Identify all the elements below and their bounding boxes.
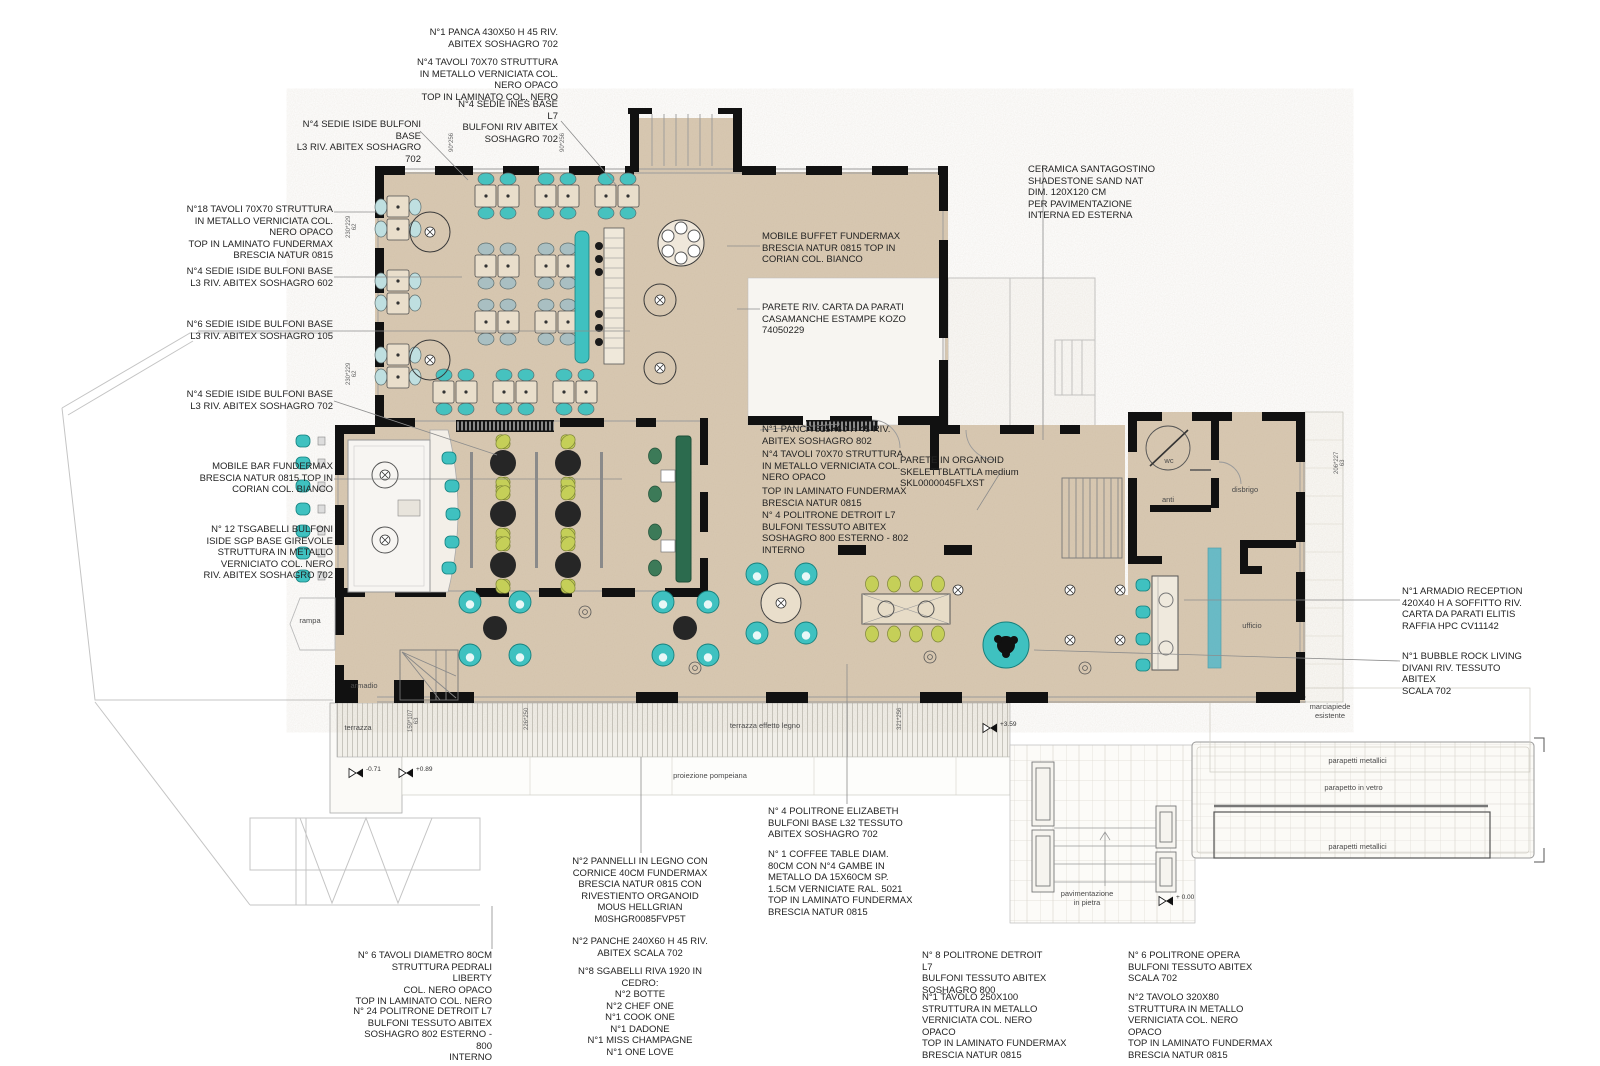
annotation-sedie-iside-602: N°4 SEDIE ISIDE BULFONI BASE L3 RIV. ABI… xyxy=(178,266,333,289)
teal-banquette xyxy=(575,231,589,363)
annotation-sedie-iside-702-top: N°4 SEDIE ISIDE BULFONI BASE L3 RIV. ABI… xyxy=(281,119,421,165)
dim-label: 321*256 xyxy=(897,708,903,730)
label-disbrigo: disbrigo xyxy=(1218,486,1272,495)
dim-label: 159*107 63 xyxy=(408,710,421,732)
terrace-wood-deck xyxy=(337,703,1010,757)
glass-partition xyxy=(1208,548,1221,668)
label-marciapiede: marciapiede esistente xyxy=(1286,703,1374,720)
label-rampa: rampa xyxy=(288,617,332,626)
annotation-sedie-iside-105: N°6 SEDIE ISIDE BULFONI BASE L3 RIV. ABI… xyxy=(178,319,333,342)
dim-label: 230*229 62 xyxy=(346,216,359,238)
bench-430 xyxy=(456,420,554,432)
annotation-coffee-table: N° 1 COFFEE TABLE DIAM. 80CM CON N°4 GAM… xyxy=(768,849,920,918)
annotation-top-laminato: TOP IN LAMINATO FUNDERMAX BRESCIA NATUR … xyxy=(762,486,920,509)
annotation-parete-kozo: PARETE RIV. CARTA DA PARATI CASAMANCHE E… xyxy=(762,302,917,337)
floor-plan-page: N°1 PANCA 430X50 H 45 RIV. ABITEX SOSHAG… xyxy=(0,0,1600,1066)
buffet-counter xyxy=(604,228,624,364)
label-pietra: pavimentazione in pietra xyxy=(1042,890,1132,907)
annotation-elizabeth: N° 4 POLITRONE ELIZABETH BULFONI BASE L3… xyxy=(768,806,916,841)
annotation-tavolo-320: N°2 TAVOLO 320X80 STRUTTURA IN METALLO V… xyxy=(1128,992,1273,1061)
annotation-tavoli-80: N° 6 TAVOLI DIAMETRO 80CM STRUTTURA PEDR… xyxy=(352,950,492,1008)
annotation-bubble-rock: N°1 BUBBLE ROCK LIVING DIVANI RIV. TESSU… xyxy=(1402,651,1530,697)
bubble-rock-sofa xyxy=(983,622,1029,668)
annotation-tavoli-70-nero: N°4 TAVOLI 70X70 STRUTTURA IN METALLO VE… xyxy=(398,57,558,103)
label-parapetti-top: parapetti metallici xyxy=(1310,757,1405,766)
dim-label: 90*256 xyxy=(560,133,566,152)
dim-label: 90*256 xyxy=(449,133,455,152)
label-pompeiana: proiezione pompeiana xyxy=(645,772,775,781)
label-wc: wc xyxy=(1156,457,1182,466)
wallpaper-room-floor xyxy=(748,278,945,425)
label-parapetto-vetro: parapetto in vetro xyxy=(1306,784,1401,793)
annotation-mobile-buffet: MOBILE BUFFET FUNDERMAX BRESCIA NATUR 08… xyxy=(762,231,912,266)
annotation-pannelli: N°2 PANNELLI IN LEGNO CON CORNICE 40CM F… xyxy=(540,856,740,925)
annotation-tavoli-70-b: N°4 TAVOLI 70X70 STRUTTURA IN METALLO VE… xyxy=(762,449,920,484)
annotation-opera: N° 6 POLITRONE OPERA BULFONI TESSUTO ABI… xyxy=(1128,950,1256,985)
dim-label: 226*250 xyxy=(524,708,530,730)
elevation-mark: -0.71 xyxy=(366,766,381,773)
annotation-sedie-ines: N°4 SEDIE INES BASE L7 BULFONI RIV ABITE… xyxy=(448,99,558,145)
annotation-panca-515: N°1 PANCA 515X60 H 45 RIV. ABITEX SOSHAG… xyxy=(762,424,912,447)
annotation-politrone-8: N° 8 POLITRONE DETROIT L7 BULFONI TESSUT… xyxy=(922,950,1054,996)
annotation-ceramica: CERAMICA SANTAGOSTINO SHADESTONE SAND NA… xyxy=(1028,164,1173,222)
dim-label: 206*227 63 xyxy=(1334,452,1347,474)
annotation-armadio-reception: N°1 ARMADIO RECEPTION 420X40 H A SOFFITT… xyxy=(1402,586,1530,632)
annotation-sgabelli-12: N° 12 TSGABELLI BULFONI ISIDE SGP BASE G… xyxy=(148,524,333,582)
annotation-tavoli-18: N°18 TAVOLI 70X70 STRUTTURA IN METALLO V… xyxy=(148,204,333,262)
annotation-politrone-4: N° 4 POLITRONE DETROIT L7 BULFONI TESSUT… xyxy=(762,510,917,556)
elevation-mark: +0.89 xyxy=(416,766,432,773)
annotation-mobile-bar: MOBILE BAR FUNDERMAX BRESCIA NATUR 0815 … xyxy=(150,461,333,496)
annotation-panche-240: N°2 PANCHE 240X60 H 45 RIV. ABITEX SCALA… xyxy=(540,936,740,959)
annotation-sedie-iside-702-mid: N°4 SEDIE ISIDE BULFONI BASE L3 RIV. ABI… xyxy=(155,389,333,412)
elevation-mark: + 0.00 xyxy=(1176,894,1194,901)
annotation-politrone-24: N° 24 POLITRONE DETROIT L7 BULFONI TESSU… xyxy=(352,1006,492,1064)
annotation-organoid: PARETE IN ORGANOID SKELETTBLATTLA medium… xyxy=(900,455,1035,490)
label-ufficio: ufficio xyxy=(1228,622,1276,631)
label-terrazza-legno: terrazza effetto legno xyxy=(700,722,830,731)
green-banquette xyxy=(676,436,691,582)
label-terrazza: terrazza xyxy=(330,724,386,733)
service-table-plates xyxy=(658,220,704,266)
annotation-panca-430: N°1 PANCA 430X50 H 45 RIV. ABITEX SOSHAG… xyxy=(408,27,558,50)
elevation-mark: +3.59 xyxy=(1000,721,1016,728)
label-armadio: armadio xyxy=(338,682,390,691)
annotation-sgabelli-riva: N°8 SGABELLI RIVA 1920 IN CEDRO: N°2 BOT… xyxy=(555,966,725,1059)
annotation-tavolo-250: N°1 TAVOLO 250X100 STRUTTURA IN METALLO … xyxy=(922,992,1067,1061)
dim-label: 230*229 62 xyxy=(346,363,359,385)
label-anti: anti xyxy=(1152,496,1184,505)
label-parapetti-bottom: parapetti metallici xyxy=(1310,843,1405,852)
